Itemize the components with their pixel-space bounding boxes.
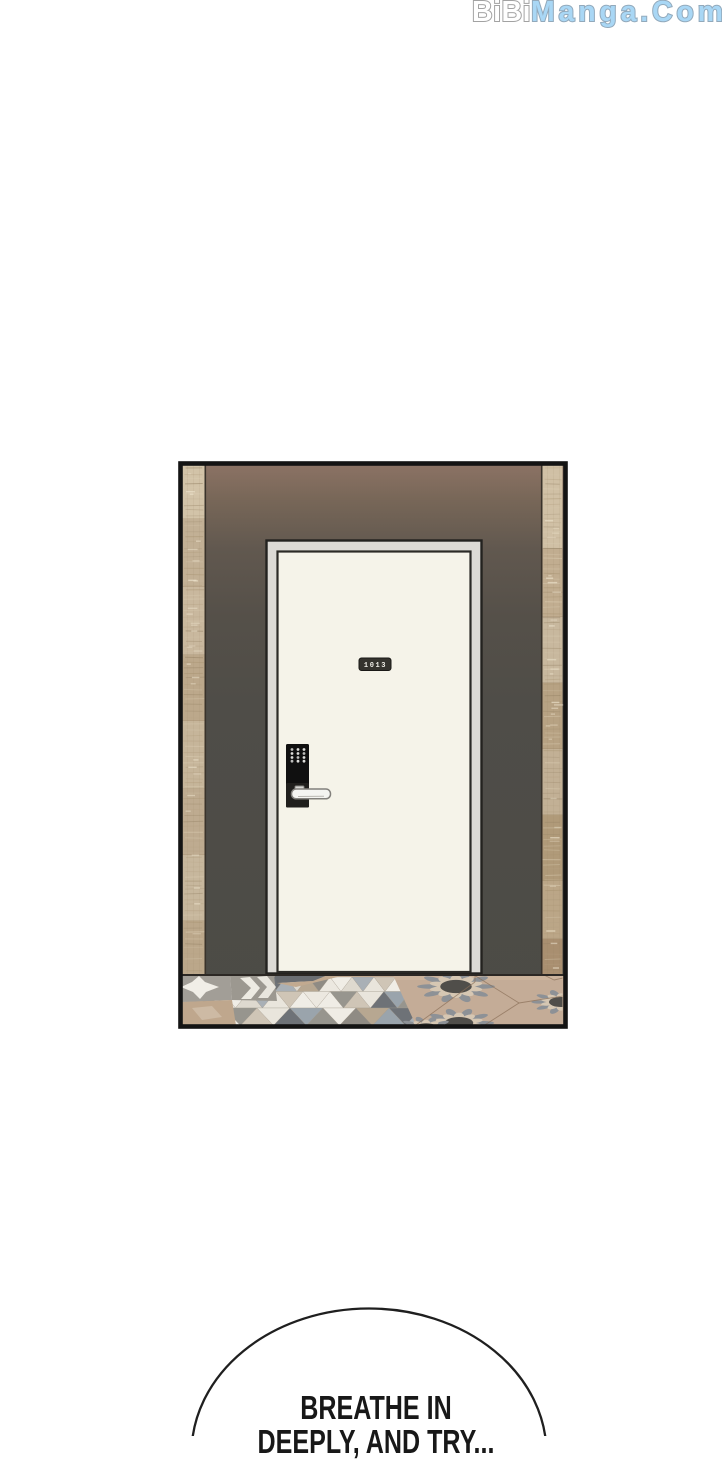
- svg-text:BiBiManga.Com: BiBiManga.Com: [472, 0, 722, 28]
- svg-text:1013: 1013: [364, 662, 387, 670]
